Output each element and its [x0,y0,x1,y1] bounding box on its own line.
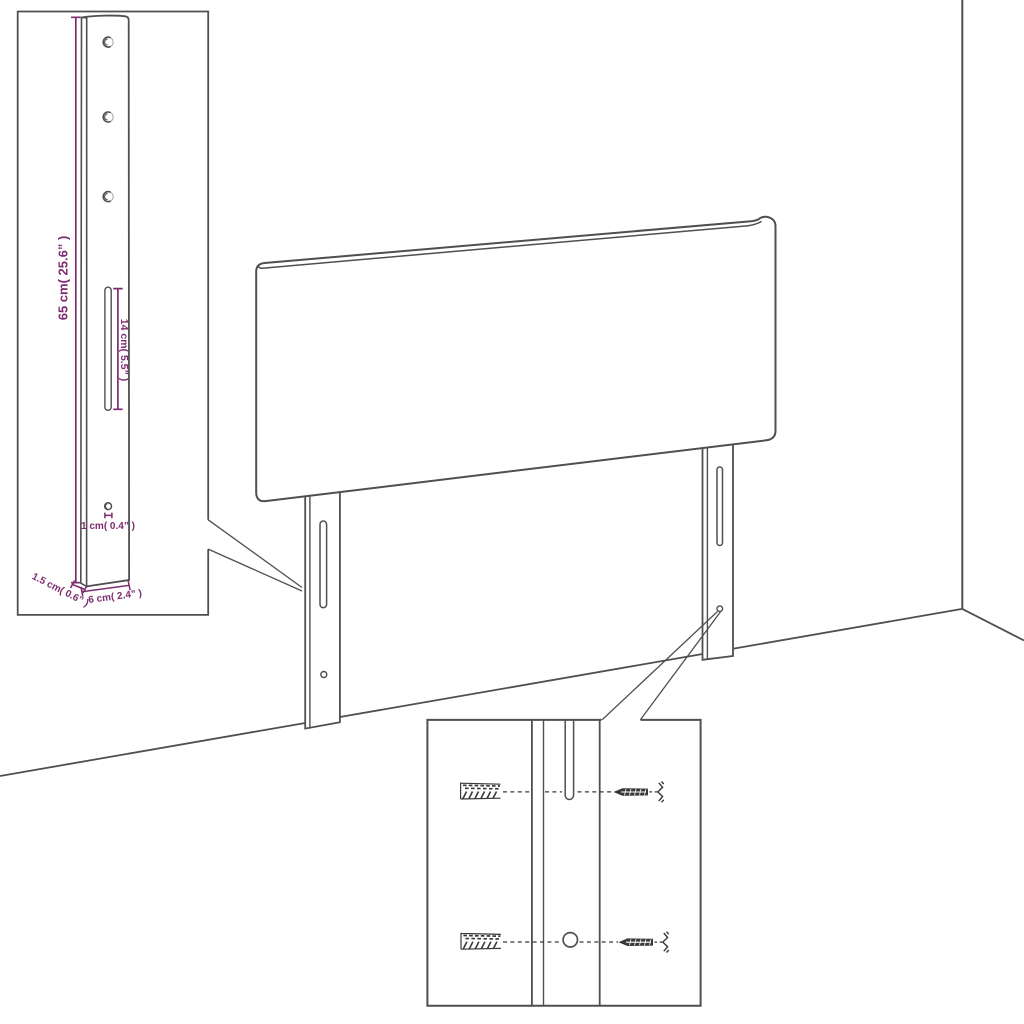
svg-text:65 cm( 25.6” ): 65 cm( 25.6” ) [55,236,70,321]
svg-text:1 cm( 0.4” ): 1 cm( 0.4” ) [81,521,135,532]
svg-text:14 cm( 5.5” ): 14 cm( 5.5” ) [118,319,130,381]
